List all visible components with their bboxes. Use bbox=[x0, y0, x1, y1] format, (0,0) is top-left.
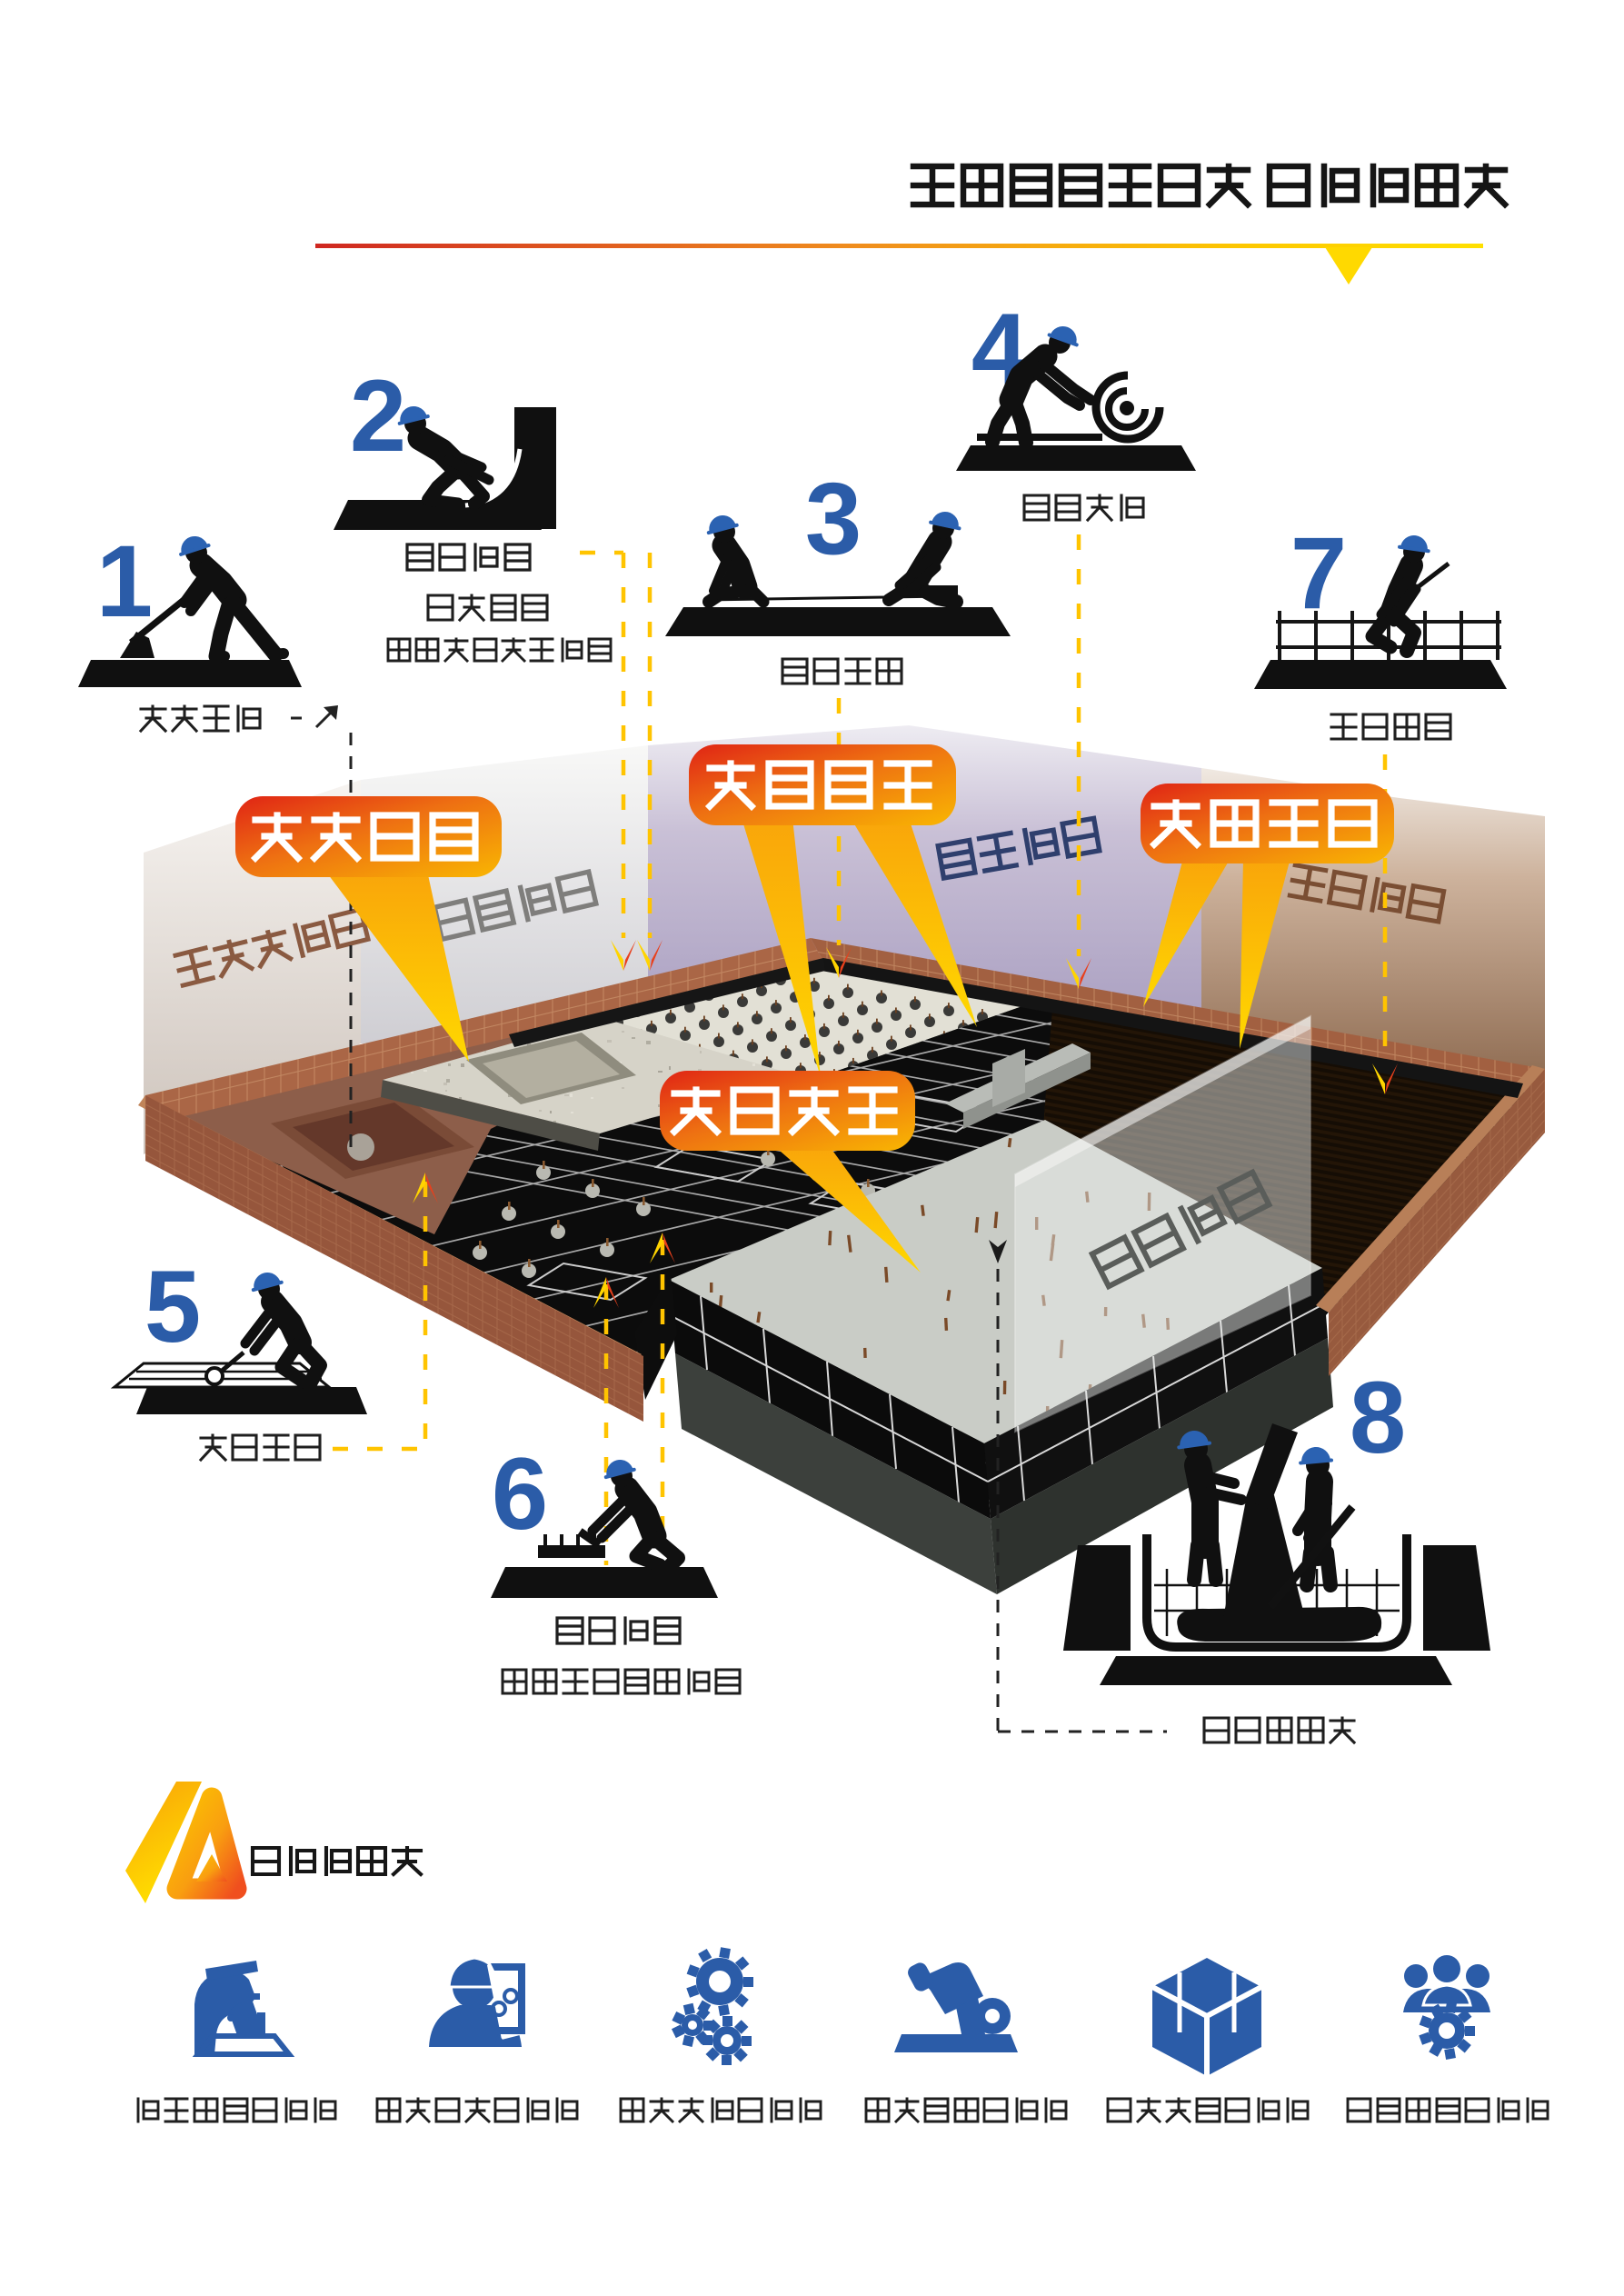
svg-text:3: 3 bbox=[805, 462, 862, 575]
svg-text:5: 5 bbox=[144, 1250, 201, 1363]
svg-text:2: 2 bbox=[350, 359, 406, 473]
svg-text:8: 8 bbox=[1350, 1361, 1406, 1474]
svg-text:1: 1 bbox=[96, 524, 153, 638]
svg-text:7: 7 bbox=[1290, 516, 1347, 630]
svg-text:6: 6 bbox=[492, 1437, 548, 1551]
